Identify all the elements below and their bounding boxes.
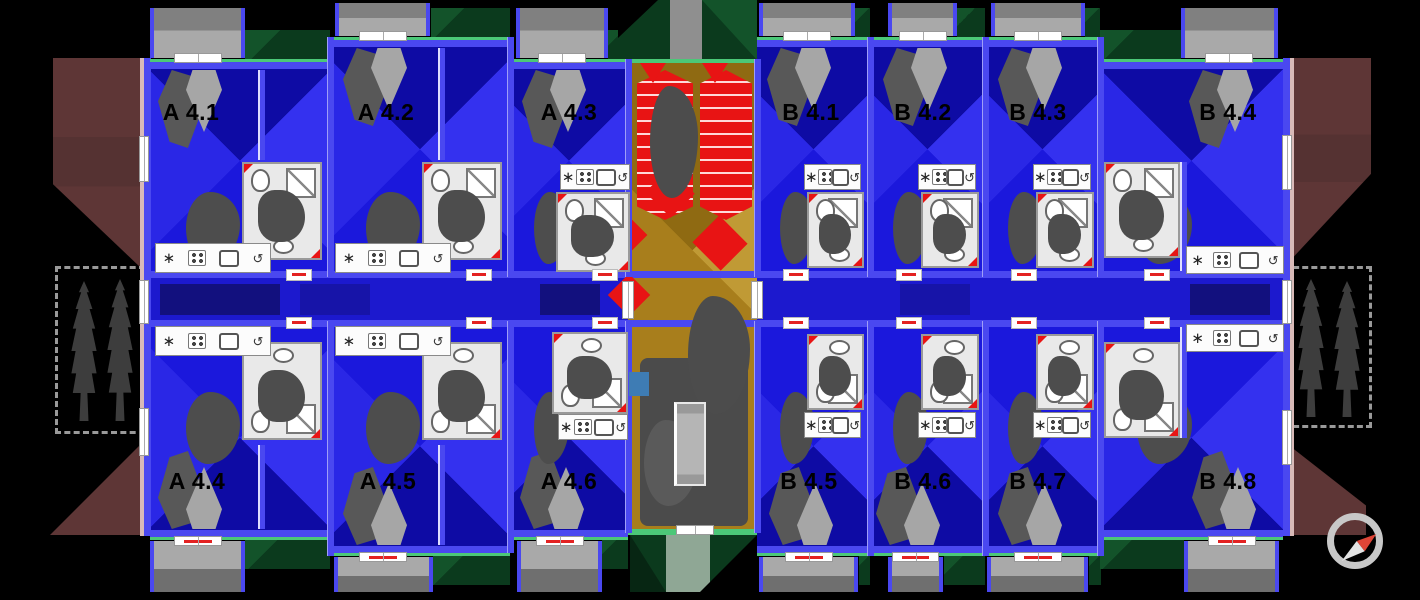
window-sill-mark (369, 556, 397, 559)
core-corridor-door (751, 281, 763, 319)
window-sill-mark (184, 540, 212, 543)
kitchen-sink-icon (832, 169, 849, 186)
riser-marker (629, 372, 649, 396)
balcony (888, 557, 943, 592)
bathroom (1104, 342, 1180, 438)
toilet-icon (1113, 169, 1132, 192)
compass-needle-south (1338, 529, 1381, 566)
window-sill-mark (1218, 540, 1246, 543)
entry-door (286, 269, 312, 281)
radiator-icon: ∗ (1191, 331, 1204, 346)
toilet-icon (431, 169, 450, 192)
balcony-door-window (1208, 536, 1256, 546)
roof-recess (1085, 8, 1100, 40)
door-swing-mark (311, 249, 320, 258)
entry-door (1011, 269, 1037, 281)
door-leaf-mark (1150, 321, 1164, 324)
balcony-door-window (785, 552, 833, 562)
kitchen-sink-icon (1062, 417, 1079, 434)
balcony (516, 8, 608, 58)
unit-boundary-wall (982, 321, 989, 556)
door-swing-mark (1038, 194, 1047, 203)
door-leaf-mark (902, 273, 916, 276)
balcony-door-window (174, 536, 222, 546)
radiator-icon: ∗ (560, 420, 573, 435)
bathroom-shadow (1119, 190, 1164, 241)
roof-recess (859, 553, 870, 585)
extractor-icon: ↺ (849, 419, 860, 432)
kitchen-sink-icon (219, 250, 239, 267)
unit-boundary-wall (1097, 37, 1104, 277)
floor-plan-canvas: ∗ ↺ A 4.1 ∗ ↺ (0, 0, 1420, 600)
stove-icon (188, 250, 206, 266)
entry-door (592, 269, 618, 281)
balcony-door-window (174, 53, 222, 63)
bathroom (552, 332, 628, 414)
extractor-icon: ↺ (617, 171, 628, 184)
bathroom (242, 342, 322, 440)
facade-wall (330, 546, 510, 556)
kitchen-counter: ∗ ↺ (155, 243, 271, 273)
bathroom-shadow (567, 356, 612, 399)
door-swing-mark (558, 194, 567, 203)
extractor-icon: ↺ (1268, 332, 1279, 345)
balcony-door-window (899, 31, 947, 41)
balcony (1181, 8, 1278, 58)
kitchen-sink-icon (947, 169, 964, 186)
unit-boundary-wall (1097, 321, 1104, 556)
entry-door (896, 269, 922, 281)
toilet-icon (251, 169, 270, 192)
stove-icon (574, 419, 592, 435)
door-leaf-mark (472, 321, 486, 324)
entry-door (896, 317, 922, 329)
balcony (517, 541, 602, 592)
unit-label: B 4.2 (863, 99, 983, 126)
radiator-icon: ∗ (1191, 253, 1204, 268)
bathroom (422, 342, 502, 440)
radiator-icon: ∗ (163, 251, 176, 266)
kitchen-sink-icon (947, 417, 964, 434)
east-window (1282, 135, 1292, 190)
door-swing-mark (1083, 257, 1092, 266)
extractor-icon: ↺ (1268, 254, 1279, 267)
bathroom (1036, 192, 1094, 268)
door-leaf-mark (902, 321, 916, 324)
bathroom-shadow (438, 370, 485, 422)
partition-wall (258, 445, 265, 529)
extractor-icon: ↺ (253, 335, 264, 348)
kitchen-counter: ∗ ↺ (155, 326, 271, 356)
unit-label: A 4.4 (137, 468, 257, 495)
balcony-door-window (1014, 31, 1062, 41)
door-leaf-mark (1150, 273, 1164, 276)
unit-boundary-wall (754, 321, 761, 533)
entry-door (466, 317, 492, 329)
roof-recess (433, 553, 510, 585)
unit-boundary-wall (327, 321, 334, 556)
core-corridor-door (622, 281, 634, 319)
door-swing-mark (1106, 164, 1115, 173)
door-leaf-mark (598, 273, 612, 276)
kitchen-counter: ∗ ↺ (1186, 246, 1284, 274)
door-swing-mark (1038, 336, 1047, 345)
roof-recess (245, 30, 330, 62)
extractor-icon: ↺ (253, 252, 264, 265)
bathroom (921, 334, 979, 410)
radiator-icon: ∗ (163, 334, 176, 349)
roof-recess (944, 553, 985, 585)
bathroom-shadow (258, 370, 305, 422)
window-sill-mark (546, 540, 574, 543)
kitchen-counter: ∗ ↺ (1033, 412, 1091, 438)
bathroom-sink-icon (1059, 340, 1080, 355)
unit-label: B 4.6 (863, 468, 983, 495)
door-leaf-mark (292, 273, 306, 276)
radiator-icon: ∗ (919, 170, 932, 185)
corridor-shade (540, 284, 600, 315)
entry-door (1144, 269, 1170, 281)
unit-label: B 4.7 (978, 468, 1098, 495)
entry-door (286, 317, 312, 329)
extractor-icon: ↺ (964, 171, 975, 184)
window-sill-mark (902, 556, 929, 559)
entry-door (466, 269, 492, 281)
radiator-icon: ∗ (1034, 418, 1047, 433)
bathroom-shadow (1119, 370, 1164, 421)
bathroom-sink-icon (829, 340, 850, 355)
bathroom-shadow (1048, 356, 1081, 396)
kitchen-sink-icon (1239, 252, 1259, 269)
roof-recess (1100, 30, 1181, 62)
facade-wall (330, 37, 510, 47)
stove-icon (576, 169, 594, 185)
door-swing-mark (619, 261, 628, 270)
bathroom (921, 192, 979, 268)
bathroom-shadow (819, 214, 852, 254)
entry-door (1011, 317, 1037, 329)
bathroom (807, 334, 864, 410)
unit-label: A 4.6 (509, 468, 629, 495)
radiator-icon: ∗ (343, 334, 356, 349)
stove-icon (1213, 330, 1231, 346)
corridor-shade (160, 284, 280, 315)
stove-icon (368, 250, 386, 266)
door-leaf-mark (292, 321, 306, 324)
radiator-icon: ∗ (1034, 170, 1047, 185)
balcony (150, 541, 245, 592)
unit-boundary-wall (507, 37, 514, 277)
unit-boundary-wall (754, 59, 761, 277)
bathroom-sink-icon (581, 338, 602, 353)
staircase-flight (700, 70, 752, 220)
balcony (334, 557, 433, 592)
kitchen-sink-icon (1239, 330, 1259, 347)
unit-boundary-wall (507, 321, 514, 553)
door-swing-mark (424, 164, 433, 173)
bathroom-shadow (571, 215, 614, 257)
balcony-door-window (538, 53, 586, 63)
kitchen-sink-icon (1062, 169, 1079, 186)
west-window (139, 408, 149, 456)
balcony-door-window (783, 31, 831, 41)
unit-label: B 4.1 (751, 99, 871, 126)
kitchen-sink-icon (219, 333, 239, 350)
stove-icon (932, 169, 947, 185)
door-leaf-mark (1017, 273, 1031, 276)
canopy-path-south (666, 535, 710, 592)
stove-icon (1213, 252, 1231, 268)
unit-boundary-wall (982, 37, 989, 277)
bathroom-sink-icon (1133, 348, 1154, 363)
door-swing-mark (554, 334, 563, 343)
bathroom-shadow (933, 356, 966, 396)
canopy-path (670, 0, 702, 60)
balcony (1184, 541, 1279, 592)
bathroom-shadow (258, 190, 305, 242)
unit-label: B 4.5 (749, 468, 869, 495)
facade-wall (1100, 59, 1283, 69)
stove-icon (1047, 417, 1062, 433)
elevator (674, 402, 706, 486)
unit-label: A 4.5 (328, 468, 448, 495)
kitchen-sink-icon (399, 250, 419, 267)
extractor-icon: ↺ (1079, 171, 1090, 184)
unit-label: B 4.4 (1168, 99, 1288, 126)
bathroom (1104, 162, 1180, 258)
unit-label: A 4.1 (131, 99, 251, 126)
stove-icon (818, 417, 833, 433)
door-leaf-mark (789, 273, 803, 276)
roof-recess (431, 8, 510, 40)
kitchen-counter: ∗ ↺ (335, 243, 451, 273)
door-swing-mark (923, 336, 932, 345)
window-sill-mark (795, 556, 823, 559)
radiator-icon: ∗ (919, 418, 932, 433)
bathroom-sink-icon (944, 340, 965, 355)
stove-icon (1047, 169, 1062, 185)
partition-wall (438, 445, 445, 545)
entry-door (783, 317, 809, 329)
east-window (1282, 410, 1292, 465)
corridor-wall-north (150, 271, 1283, 278)
unit-label: B 4.8 (1168, 468, 1288, 495)
door-swing-mark (1106, 344, 1115, 353)
bathroom (556, 192, 630, 272)
roof-recess (245, 537, 330, 569)
unit-label: B 4.3 (978, 99, 1098, 126)
door-swing-mark (244, 164, 253, 173)
extractor-icon: ↺ (849, 171, 860, 184)
bathroom-sink-icon (273, 348, 294, 363)
kitchen-counter: ∗ ↺ (804, 412, 861, 438)
roof-recess (602, 537, 628, 569)
extractor-icon: ↺ (433, 335, 444, 348)
roof-recess (855, 8, 870, 40)
bathroom-shadow (933, 214, 966, 254)
kitchen-counter: ∗ ↺ (335, 326, 451, 356)
door-leaf-mark (472, 273, 486, 276)
corridor-shade (1190, 284, 1270, 315)
balcony (759, 557, 858, 592)
entrance-door (676, 525, 714, 535)
window-sill-mark (1024, 556, 1052, 559)
extractor-icon: ↺ (1079, 419, 1090, 432)
balcony-door-window (1205, 53, 1253, 63)
door-leaf-mark (789, 321, 803, 324)
kitchen-counter: ∗ ↺ (1186, 324, 1284, 352)
kitchen-counter: ∗ ↺ (918, 164, 976, 190)
kitchen-sink-icon (832, 417, 849, 434)
bathroom (807, 192, 864, 268)
extractor-icon: ↺ (433, 252, 444, 265)
entry-door (1144, 317, 1170, 329)
kitchen-counter: ∗ ↺ (558, 414, 628, 440)
door-swing-mark (491, 249, 500, 258)
kitchen-sink-icon (399, 333, 419, 350)
unit-boundary-wall (327, 37, 334, 277)
kitchen-counter: ∗ ↺ (560, 164, 630, 190)
unit-label: A 4.2 (326, 99, 446, 126)
corridor-shade (900, 284, 970, 315)
door-swing-mark (1169, 247, 1178, 256)
kitchen-sink-icon (596, 169, 616, 186)
kitchen-counter: ∗ ↺ (804, 164, 861, 190)
door-swing-mark (809, 336, 818, 345)
compass-needle (1338, 529, 1381, 566)
compass-icon (1327, 513, 1383, 569)
entry-door (783, 269, 809, 281)
door-swing-mark (923, 194, 932, 203)
balcony (150, 8, 245, 58)
corridor-west-window (139, 280, 149, 324)
unit-boundary-wall (867, 37, 874, 277)
balcony-door-window (359, 31, 407, 41)
balcony-door-window (892, 552, 939, 562)
entry-door (592, 317, 618, 329)
kitchen-counter: ∗ ↺ (1033, 164, 1091, 190)
radiator-icon: ∗ (343, 251, 356, 266)
extractor-icon: ↺ (615, 421, 626, 434)
door-swing-mark (853, 257, 862, 266)
stove-icon (818, 169, 833, 185)
core-facade-north (628, 59, 757, 63)
radiator-icon: ∗ (562, 170, 575, 185)
corridor-east-window (1282, 280, 1292, 324)
bathroom-shadow (438, 190, 485, 242)
roof-recess (1100, 537, 1184, 569)
kitchen-sink-icon (594, 419, 614, 436)
unit-label: A 4.3 (509, 99, 629, 126)
balcony-door-window (536, 536, 584, 546)
stove-icon (368, 333, 386, 349)
bathroom-sink-icon (453, 348, 474, 363)
door-leaf-mark (1017, 321, 1031, 324)
kitchen-counter: ∗ ↺ (918, 412, 976, 438)
west-window (139, 136, 149, 182)
door-swing-mark (968, 257, 977, 266)
corridor-shade (300, 284, 370, 315)
bathroom-shadow (819, 356, 852, 396)
extractor-icon: ↺ (964, 419, 975, 432)
balcony (987, 557, 1088, 592)
partition-wall (258, 70, 265, 160)
door-leaf-mark (598, 321, 612, 324)
radiator-icon: ∗ (805, 418, 818, 433)
bathroom (1036, 334, 1094, 410)
stove-icon (932, 417, 947, 433)
roof-recess (957, 8, 985, 40)
balcony-door-window (1014, 552, 1062, 562)
radiator-icon: ∗ (805, 170, 818, 185)
stove-icon (188, 333, 206, 349)
bathroom-shadow (1048, 214, 1081, 254)
door-swing-mark (809, 194, 818, 203)
balcony-door-window (359, 552, 407, 562)
unit-boundary-wall (867, 321, 874, 556)
